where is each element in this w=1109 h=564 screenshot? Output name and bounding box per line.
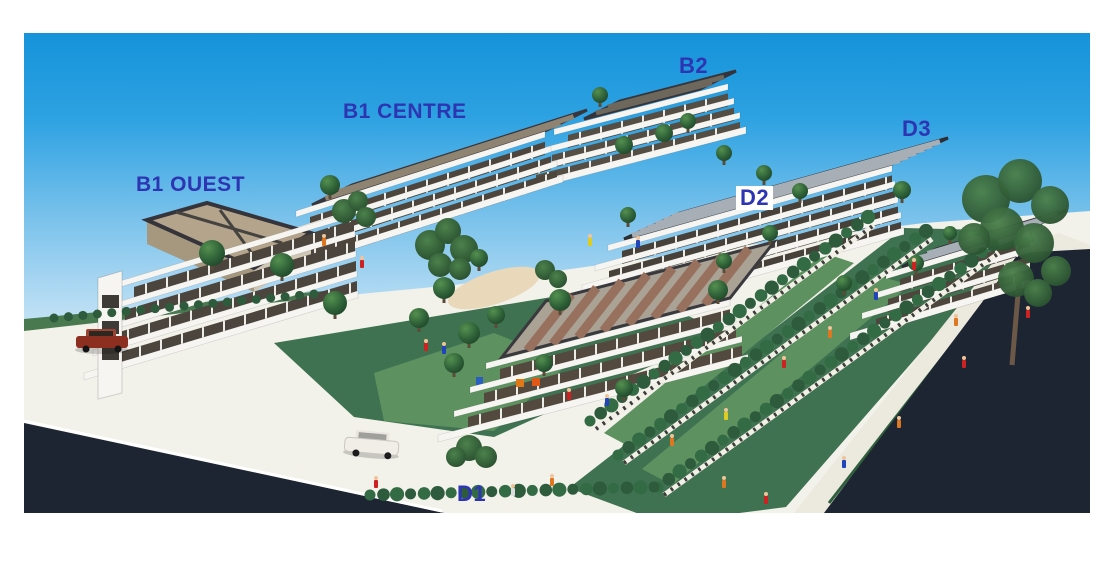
label-b2: B2 xyxy=(679,54,708,77)
label-b1-ouest: B1 OUEST xyxy=(136,174,245,196)
label-d2: D2 xyxy=(736,186,773,210)
label-d1: D1 xyxy=(457,482,486,505)
label-d3: D3 xyxy=(902,117,931,140)
model-photo: B1 OUEST B1 CENTRE B2 D3 D2 D1 xyxy=(24,33,1090,513)
label-b1-centre: B1 CENTRE xyxy=(343,101,467,123)
model-scene xyxy=(24,33,1090,513)
